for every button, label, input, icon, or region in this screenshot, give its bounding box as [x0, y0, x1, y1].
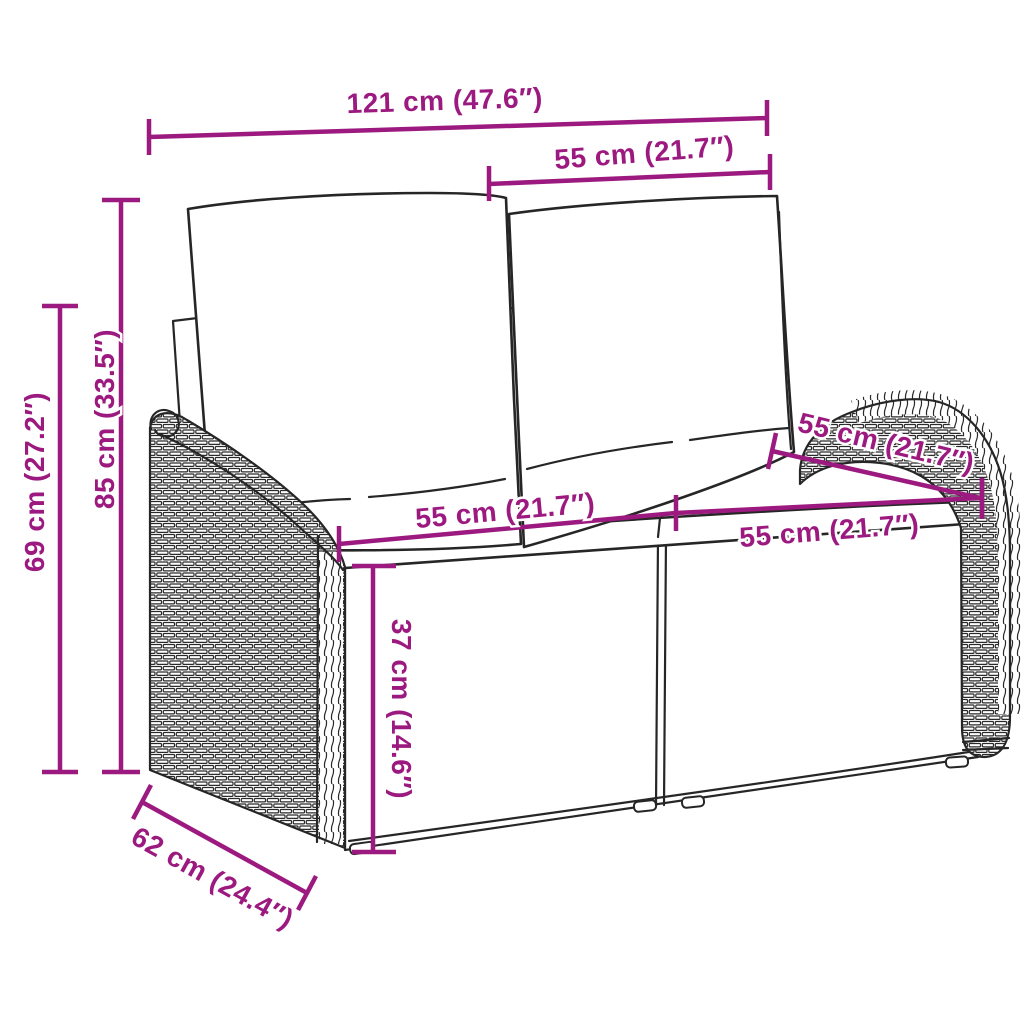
- dimension-armrest-height-label: 69 cm (27.2″): [19, 392, 50, 572]
- product-diagram-svg: 121 cm (47.6″) 55 cm (21.7″) 85 cm (33.5…: [0, 0, 1024, 1024]
- dimension-armrest-height: 69 cm (27.2″): [19, 306, 78, 772]
- base-front-panel: [345, 521, 978, 850]
- dimension-total-height-label: 85 cm (33.5″): [89, 329, 120, 509]
- dimension-total-depth-label: 62 cm (24.4″): [126, 820, 299, 934]
- dimension-seat-height: 37 cm (14.6″): [352, 566, 417, 852]
- dimension-total-width-label: 121 cm (47.6″): [346, 82, 543, 119]
- base-bottom-lip: [349, 751, 975, 841]
- dimension-backrest-width: 55 cm (21.7″): [489, 130, 770, 201]
- dimension-total-height: 85 cm (33.5″): [89, 200, 140, 772]
- dimension-seat-height-label: 37 cm (14.6″): [386, 619, 417, 799]
- dimension-backrest-width-label: 55 cm (21.7″): [553, 130, 735, 175]
- diagram-stage: 121 cm (47.6″) 55 cm (21.7″) 85 cm (33.5…: [0, 0, 1024, 1024]
- base-module-seam: [656, 537, 666, 806]
